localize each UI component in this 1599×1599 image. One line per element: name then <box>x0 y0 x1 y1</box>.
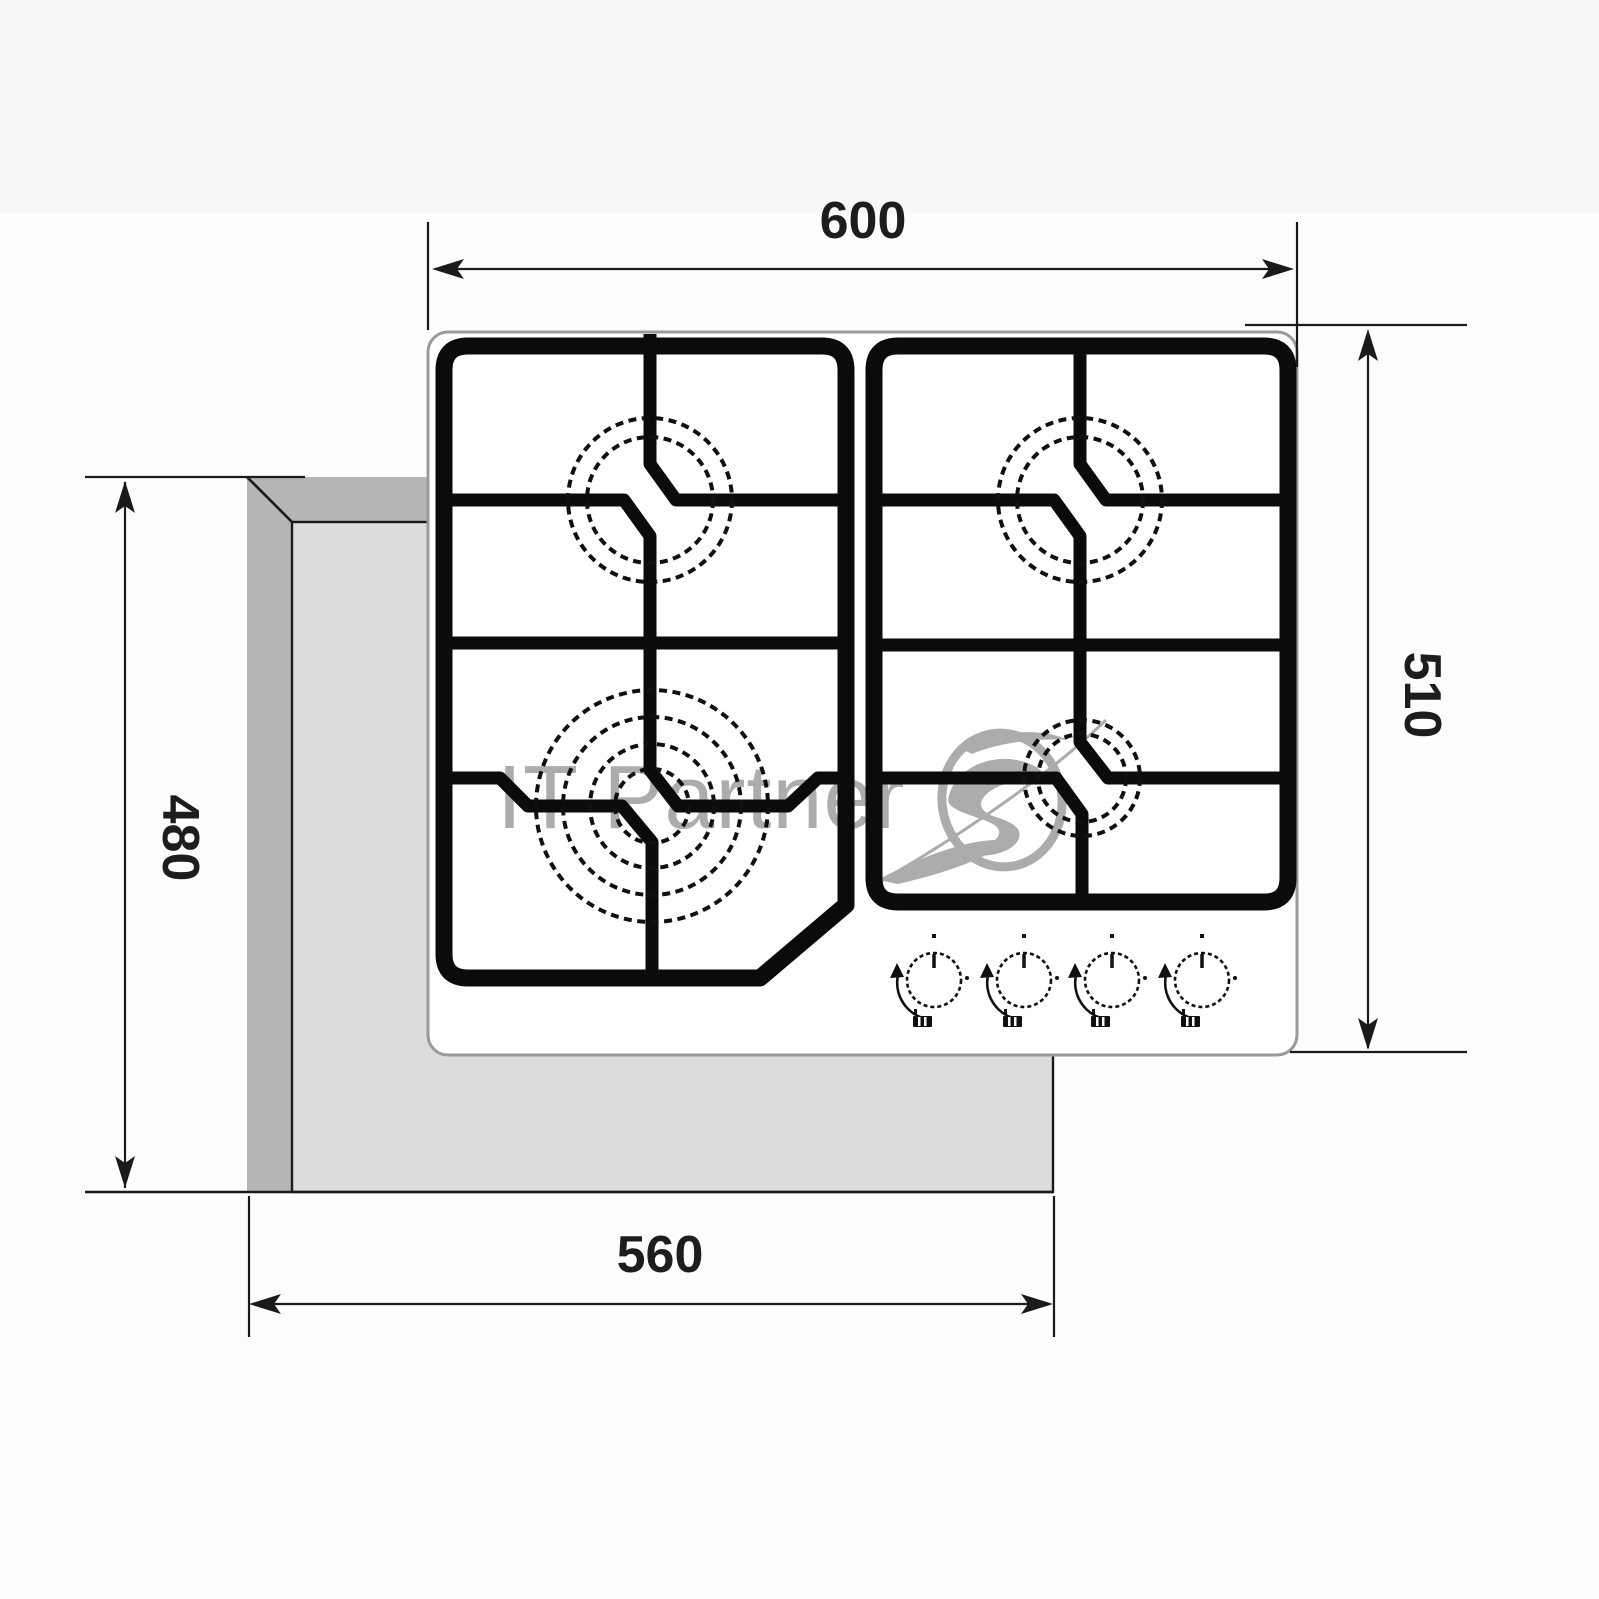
top-background-band <box>0 0 1599 213</box>
hob-body <box>428 332 1297 1055</box>
dim-bottom-value: 560 <box>617 1226 704 1284</box>
dim-left-value: 480 <box>151 795 209 882</box>
installation-diagram: IT Partner <box>0 0 1599 1599</box>
dim-top-value: 600 <box>820 192 907 250</box>
diagram-canvas: IT Partner <box>0 0 1599 1599</box>
dim-right-value: 510 <box>1393 652 1451 739</box>
